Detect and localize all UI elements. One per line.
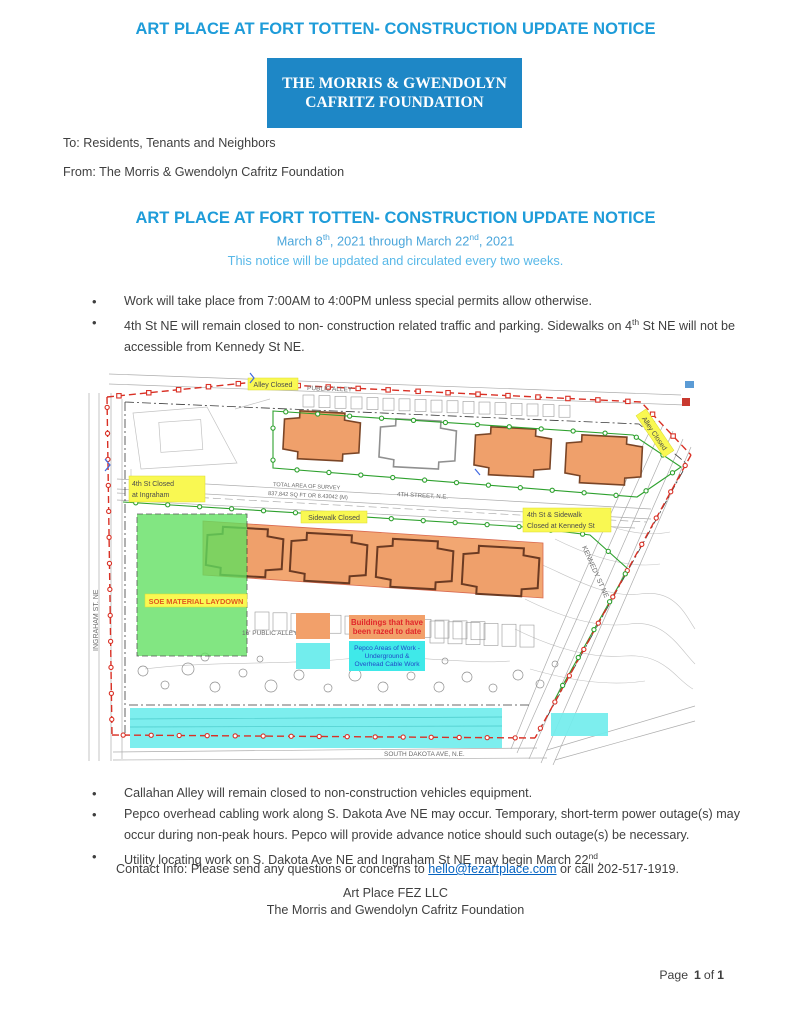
street-label: INGRAHAM ST. NE (93, 589, 100, 651)
page-number: Page1of1 (659, 968, 727, 982)
closure-label: 4th St & Sidewalk (527, 512, 582, 519)
of-word: of (704, 968, 714, 982)
cafritz-foundation-logo: THE MORRIS & GWENDOLYN CAFRITZ FOUNDATIO… (267, 58, 522, 128)
bullet-superscript: nd (589, 851, 598, 861)
signature-company: Art Place FEZ LLC (0, 886, 791, 900)
legend-label-pepco: Pepco Areas of Work - (354, 645, 420, 652)
bullet-text: Work will take place from 7:00AM to 4:00… (124, 294, 592, 308)
notice-date-range: March 8th, 2021 through March 22nd, 2021 (0, 232, 791, 248)
contact-info-line: Contact Info: Please send any questions … (116, 862, 679, 876)
date-superscript: nd (469, 232, 478, 242)
contact-text: Contact Info: Please send any questions … (116, 862, 428, 876)
notice-heading: ART PLACE AT FORT TOTTEN- CONSTRUCTION U… (0, 209, 791, 228)
page-word: Page (659, 968, 688, 982)
signature-foundation: The Morris and Gwendolyn Cafritz Foundat… (0, 903, 791, 917)
to-line: To: Residents, Tenants and Neighbors (63, 136, 276, 150)
logo-line-2: CAFRITZ FOUNDATION (267, 93, 522, 112)
list-item: 4th St NE will remain closed to non- con… (88, 312, 740, 358)
page-total: 1 (717, 968, 724, 982)
street-label: SOUTH DAKOTA AVE, N.E. (384, 751, 465, 758)
bullet-text: 4th St NE will remain closed to non- con… (124, 319, 632, 333)
street-label: PUBLIC ALLEY (307, 385, 353, 394)
date-part: March 8 (277, 233, 323, 248)
logo-line-1: THE MORRIS & GWENDOLYN (267, 74, 522, 93)
date-part: , 2021 through March 22 (330, 233, 469, 248)
from-line: From: The Morris & Gwendolyn Cafritz Fou… (63, 165, 344, 179)
page-title: ART PLACE AT FORT TOTTEN- CONSTRUCTION U… (0, 20, 791, 39)
contact-text: or call 202-517-1919. (557, 862, 680, 876)
map-legend: Buildings that have been razed to date P… (296, 613, 425, 671)
closure-label: Closed at Kennedy St (527, 523, 595, 530)
legend-label-pepco: Overhead Cable Work (354, 661, 420, 668)
street-label: 16' PUBLIC ALLEY (242, 630, 298, 637)
top-bullet-list: Work will take place from 7:00AM to 4:00… (88, 291, 740, 358)
date-part: , 2021 (479, 233, 515, 248)
list-item: Callahan Alley will remain closed to non… (88, 783, 750, 804)
closure-label: at Ingraham (132, 492, 170, 499)
site-plan-map: PUBLIC ALLEY 4TH STREET, N.E. TOTAL AREA… (85, 369, 697, 765)
contact-email-link[interactable]: hello@fezartplace.com (428, 862, 556, 876)
legend-label-pepco: Underground & (365, 653, 410, 660)
legend-swatch-razed (296, 613, 330, 639)
date-superscript: th (323, 232, 330, 242)
closure-label: Sidewalk Closed (308, 515, 360, 522)
page-current: 1 (694, 968, 701, 982)
bullet-text: Pepco overhead cabling work along S. Dak… (124, 807, 740, 842)
razed-buildings-south-band (203, 521, 543, 598)
bullet-text: Callahan Alley will remain closed to non… (124, 786, 532, 800)
legend-swatch-pepco (296, 643, 330, 669)
update-note: This notice will be updated and circulat… (0, 253, 791, 268)
street-label: 4TH STREET, N.E. (397, 492, 449, 501)
survey-area-note: TOTAL AREA OF SURVEY (273, 482, 341, 492)
existing-building-outline (378, 418, 456, 470)
legend-label-razed: Buildings that have (351, 618, 424, 627)
construction-notice-page: ART PLACE AT FORT TOTTEN- CONSTRUCTION U… (0, 0, 791, 1023)
closure-label: Alley Closed (254, 382, 293, 389)
legend-label-razed: been razed to date (353, 627, 422, 636)
list-item: Pepco overhead cabling work along S. Dak… (88, 804, 750, 846)
site-plan-svg: PUBLIC ALLEY 4TH STREET, N.E. TOTAL AREA… (85, 369, 697, 765)
soe-laydown-area (137, 514, 247, 656)
bullet-superscript: th (632, 317, 639, 327)
closure-label: 4th St Closed (132, 481, 174, 488)
razed-buildings-north-row (282, 410, 642, 486)
soe-laydown-label: SOE MATERIAL LAYDOWN (149, 597, 244, 606)
bottom-bullet-list: Callahan Alley will remain closed to non… (88, 783, 750, 871)
list-item: Work will take place from 7:00AM to 4:00… (88, 291, 740, 312)
